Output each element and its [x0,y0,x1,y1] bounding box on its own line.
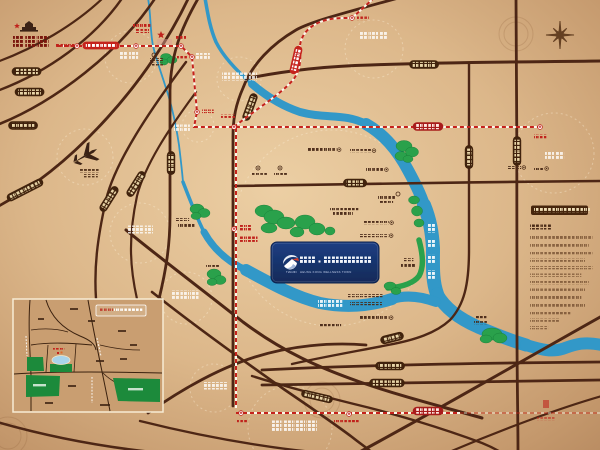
svg-text:TIANJIN: TIANJIN [286,270,297,274]
svg-text:HEUNG KONG WELLNESS TOWN: HEUNG KONG WELLNESS TOWN [300,270,352,274]
